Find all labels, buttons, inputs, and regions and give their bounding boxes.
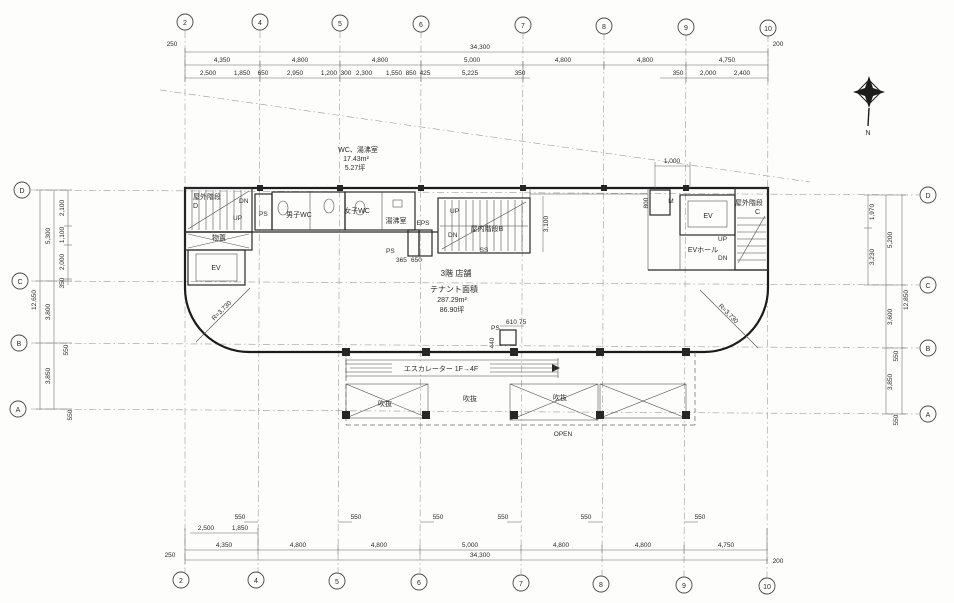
dim-bottom-offset-right: 200 bbox=[773, 558, 784, 565]
dim-top-major: 4,350 bbox=[214, 57, 231, 64]
dim-800: 800 bbox=[643, 197, 650, 208]
label-dn: DN bbox=[718, 255, 728, 262]
dim-top-minor: 2,400 bbox=[734, 70, 751, 77]
room-label-stair-center: 屋内階段B bbox=[471, 224, 504, 233]
room-tag-stair-right: C bbox=[755, 209, 760, 216]
dims-bottom: 2,500 1,850 4,350 4,800 4,800 5,000 4,80… bbox=[165, 514, 784, 565]
room-label-meter: M bbox=[668, 198, 673, 205]
room-label-wc-women: 女子WC bbox=[344, 206, 370, 215]
radius-leaders bbox=[196, 288, 758, 348]
dim-right-major: 3,600 bbox=[887, 308, 894, 325]
label-up: UP bbox=[450, 208, 459, 215]
dim-right-offset: 550 bbox=[893, 350, 900, 361]
tenant-label: テナント面積 bbox=[430, 284, 478, 294]
void-label-3: 吹抜 bbox=[553, 393, 567, 402]
void-label-2: 吹抜 bbox=[463, 394, 477, 403]
dim-top-major: 4,750 bbox=[719, 57, 736, 64]
north-label: N bbox=[865, 130, 870, 137]
dim-top-minor: 2,000 bbox=[700, 70, 717, 77]
dims-left: 12,650 5,300 3,800 3,850 2,100 1,100 2,0… bbox=[31, 190, 74, 420]
grid-bubble-label: 5 bbox=[338, 21, 342, 28]
room-label-eps: EPS bbox=[416, 220, 430, 227]
grid-bubble-label: B bbox=[926, 346, 931, 353]
grid-bubbles-top: 2 4 5 6 7 8 9 10 bbox=[177, 14, 776, 36]
dim-1000: 1,000 bbox=[664, 158, 681, 165]
area-annotations: WC、湯沸室 17.43m² 5.27坪 3階 店舗 テナント面積 287.29… bbox=[211, 145, 740, 374]
dims-right: 1,970 3,230 5,200 3,600 3,850 12,850 550… bbox=[864, 195, 910, 425]
dim-top-minor: 350 bbox=[673, 70, 684, 77]
dim-bottom-offset: 550 bbox=[695, 514, 706, 521]
room-label-ev-right: EV bbox=[703, 213, 713, 220]
dim-left-major: 5,300 bbox=[45, 227, 52, 244]
wc-area-m2: 17.43m² bbox=[343, 156, 369, 163]
grid-bubble-label: 10 bbox=[763, 584, 771, 591]
dim-top-minor: 350 bbox=[515, 70, 526, 77]
room-tag-ss: SS bbox=[480, 247, 489, 254]
grid-bubble-label: D bbox=[19, 188, 24, 195]
grid-bubble-label: 9 bbox=[682, 583, 686, 590]
dim-bottom-minor: 1,850 bbox=[232, 525, 249, 532]
grid-bubble-label: A bbox=[16, 407, 21, 414]
room-label-ev-left: EV bbox=[211, 265, 221, 272]
sink-fixture bbox=[393, 200, 402, 207]
dim-75: 75 bbox=[519, 319, 527, 326]
dim-right-offset: 550 bbox=[893, 414, 900, 425]
grid-bubble-label: 4 bbox=[258, 20, 262, 27]
dim-bottom-major: 4,800 bbox=[635, 542, 652, 549]
dim-bottom-major: 4,800 bbox=[290, 542, 307, 549]
dim-left-offset: 550 bbox=[67, 409, 74, 420]
dim-right-major: 3,850 bbox=[887, 373, 894, 390]
dim-top-major: 4,800 bbox=[292, 57, 309, 64]
room-label-ps-left: PS bbox=[259, 211, 268, 218]
dim-bottom-total: 34,300 bbox=[470, 552, 490, 559]
void-label-1: 吹抜 bbox=[378, 399, 392, 408]
dim-right-minor: 3,230 bbox=[869, 248, 876, 265]
dim-bottom-offset-left: 250 bbox=[165, 552, 176, 559]
dim-right-total: 12,850 bbox=[903, 290, 910, 310]
grid-bubble-label: 7 bbox=[521, 23, 525, 30]
dim-650: 650 bbox=[411, 257, 422, 264]
dim-top-minor: 650 bbox=[258, 70, 269, 77]
grid-bubble-label: B bbox=[17, 341, 22, 348]
room-label-storage: 物置 bbox=[212, 233, 226, 242]
grid-bubble-label: 6 bbox=[417, 580, 421, 587]
dim-610: 610 bbox=[506, 319, 517, 326]
radius-left-label: R=3,730 bbox=[211, 299, 234, 322]
room-label-stair-right: 屋外階段 bbox=[735, 198, 763, 207]
grid-lines bbox=[31, 31, 919, 577]
grid-bubble-label: 5 bbox=[335, 579, 339, 586]
wc-area-tsubo: 5.27坪 bbox=[345, 164, 366, 172]
tenant-m2: 287.29m² bbox=[437, 297, 467, 304]
dim-bottom-offset: 550 bbox=[351, 514, 362, 521]
dim-top-major: 5,000 bbox=[464, 57, 481, 64]
escalator-arrow bbox=[552, 364, 560, 372]
label-dn: DN bbox=[239, 198, 249, 205]
dim-left-minor: 350 bbox=[59, 277, 66, 288]
room-tag-stair-left: D bbox=[193, 203, 198, 210]
dim-bottom-offset: 550 bbox=[433, 514, 444, 521]
grid-bubble-label: C bbox=[17, 279, 22, 286]
dim-top-minor: 300 bbox=[341, 70, 352, 77]
dim-bottom-offset: 550 bbox=[498, 514, 509, 521]
dim-left-minor: 2,100 bbox=[59, 199, 66, 216]
dim-bottom-major: 4,350 bbox=[216, 542, 233, 549]
dim-top-offset-left: 250 bbox=[167, 41, 178, 48]
grid-bubble-label: 4 bbox=[254, 578, 258, 585]
dim-bottom-major: 4,800 bbox=[371, 542, 388, 549]
label-up: UP bbox=[233, 215, 242, 222]
label-up: UP bbox=[718, 236, 727, 243]
dim-top-major: 4,800 bbox=[372, 57, 389, 64]
grid-bubble-label: D bbox=[925, 193, 930, 200]
room-label-ps-mid: PS bbox=[386, 248, 395, 255]
radius-right-label: R=3,730 bbox=[717, 303, 740, 326]
room-label-wc-men: 男子WC bbox=[286, 211, 312, 219]
grid-bubble-label: 8 bbox=[599, 582, 603, 589]
right-stair-treads bbox=[737, 216, 766, 263]
dim-bottom-major: 4,750 bbox=[718, 542, 735, 549]
dim-bottom-offset: 550 bbox=[581, 514, 592, 521]
room-label-stair-left: 屋外階段 bbox=[193, 192, 221, 201]
floor-title: 3階 店舗 bbox=[441, 268, 472, 278]
grid-bubble-label: 2 bbox=[183, 20, 187, 27]
dims-top: 250 34,300 200 4,350 4,800 4,800 5,000 4… bbox=[167, 41, 784, 82]
wc-area-title: WC、湯沸室 bbox=[338, 145, 378, 154]
grid-bubble-label: 2 bbox=[179, 578, 183, 585]
dim-bottom-major: 5,000 bbox=[462, 542, 479, 549]
grid-bubbles-left: D C B A bbox=[10, 182, 30, 417]
label-dn: DN bbox=[448, 232, 458, 239]
room-label-kitchen: 湯沸室 bbox=[386, 216, 407, 225]
dim-left-major: 3,800 bbox=[45, 303, 52, 320]
dim-left-major: 3,850 bbox=[45, 367, 52, 384]
dim-top-minor: 2,300 bbox=[356, 70, 373, 77]
dim-top-minor: 1,850 bbox=[234, 70, 251, 77]
dim-right-minor: 1,970 bbox=[869, 203, 876, 220]
dim-440: 440 bbox=[489, 337, 496, 348]
dim-top-total: 34,300 bbox=[470, 44, 490, 51]
room-labels: 屋外階段 D DN UP PS 男子WC 女子WC 湯沸室 EPS PS 365… bbox=[193, 192, 763, 438]
dim-top-minor: 2,950 bbox=[287, 70, 304, 77]
grid-bubble-label: C bbox=[925, 283, 930, 290]
dim-top-offset-right: 200 bbox=[773, 41, 784, 48]
dim-top-minor: 425 bbox=[420, 70, 431, 77]
open-label: OPEN bbox=[554, 431, 573, 438]
dim-right-major: 5,200 bbox=[887, 231, 894, 248]
dim-top-minor: 1,200 bbox=[321, 70, 338, 77]
void-and-escalator bbox=[346, 330, 695, 425]
floor-plan-sheet: 屋外階段 D DN UP PS 男子WC 女子WC 湯沸室 EPS PS 365… bbox=[0, 0, 954, 603]
dim-left-minor: 2,000 bbox=[59, 253, 66, 270]
grid-bubble-label: A bbox=[926, 412, 931, 419]
dim-top-minor: 850 bbox=[406, 70, 417, 77]
floor-plan-drawing: 屋外階段 D DN UP PS 男子WC 女子WC 湯沸室 EPS PS 365… bbox=[0, 0, 954, 603]
room-label-ps-escalator: PS bbox=[491, 325, 500, 332]
north-compass-icon: N bbox=[853, 76, 885, 137]
dim-left-minor: 1,100 bbox=[59, 226, 66, 243]
dim-3100: 3,100 bbox=[543, 215, 550, 232]
dim-top-minor: 2,500 bbox=[200, 70, 217, 77]
grid-bubble-label: 7 bbox=[519, 581, 523, 588]
dim-365: 365 bbox=[396, 257, 407, 264]
dim-top-minor: 1,550 bbox=[386, 70, 403, 77]
toilet-fixture bbox=[324, 199, 334, 213]
tenant-tsubo: 86.90坪 bbox=[440, 306, 465, 314]
dim-top-minor: 5,225 bbox=[462, 70, 479, 77]
grid-bubble-label: 6 bbox=[419, 22, 423, 29]
grid-bubbles-bottom: 2 4 5 6 7 8 9 10 bbox=[173, 572, 775, 594]
room-label-ev-hall: EVホール bbox=[688, 246, 718, 254]
dim-bottom-major: 4,800 bbox=[553, 542, 570, 549]
dim-top-major: 4,800 bbox=[555, 57, 572, 64]
escalator-label: エスカレーター 1F→4F bbox=[404, 364, 478, 373]
ps-escalator-box bbox=[500, 330, 516, 345]
dim-bottom-minor: 2,500 bbox=[198, 525, 215, 532]
dim-top-major: 4,800 bbox=[637, 57, 654, 64]
grid-bubble-label: 8 bbox=[602, 24, 606, 31]
grid-bubble-label: 9 bbox=[684, 25, 688, 32]
dim-bottom-offset: 550 bbox=[235, 514, 246, 521]
grid-bubbles-right: D C B A bbox=[920, 187, 936, 422]
dim-left-total: 12,650 bbox=[31, 290, 38, 310]
grid-bubble-label: 10 bbox=[764, 26, 772, 33]
dim-left-offset: 550 bbox=[63, 344, 70, 355]
